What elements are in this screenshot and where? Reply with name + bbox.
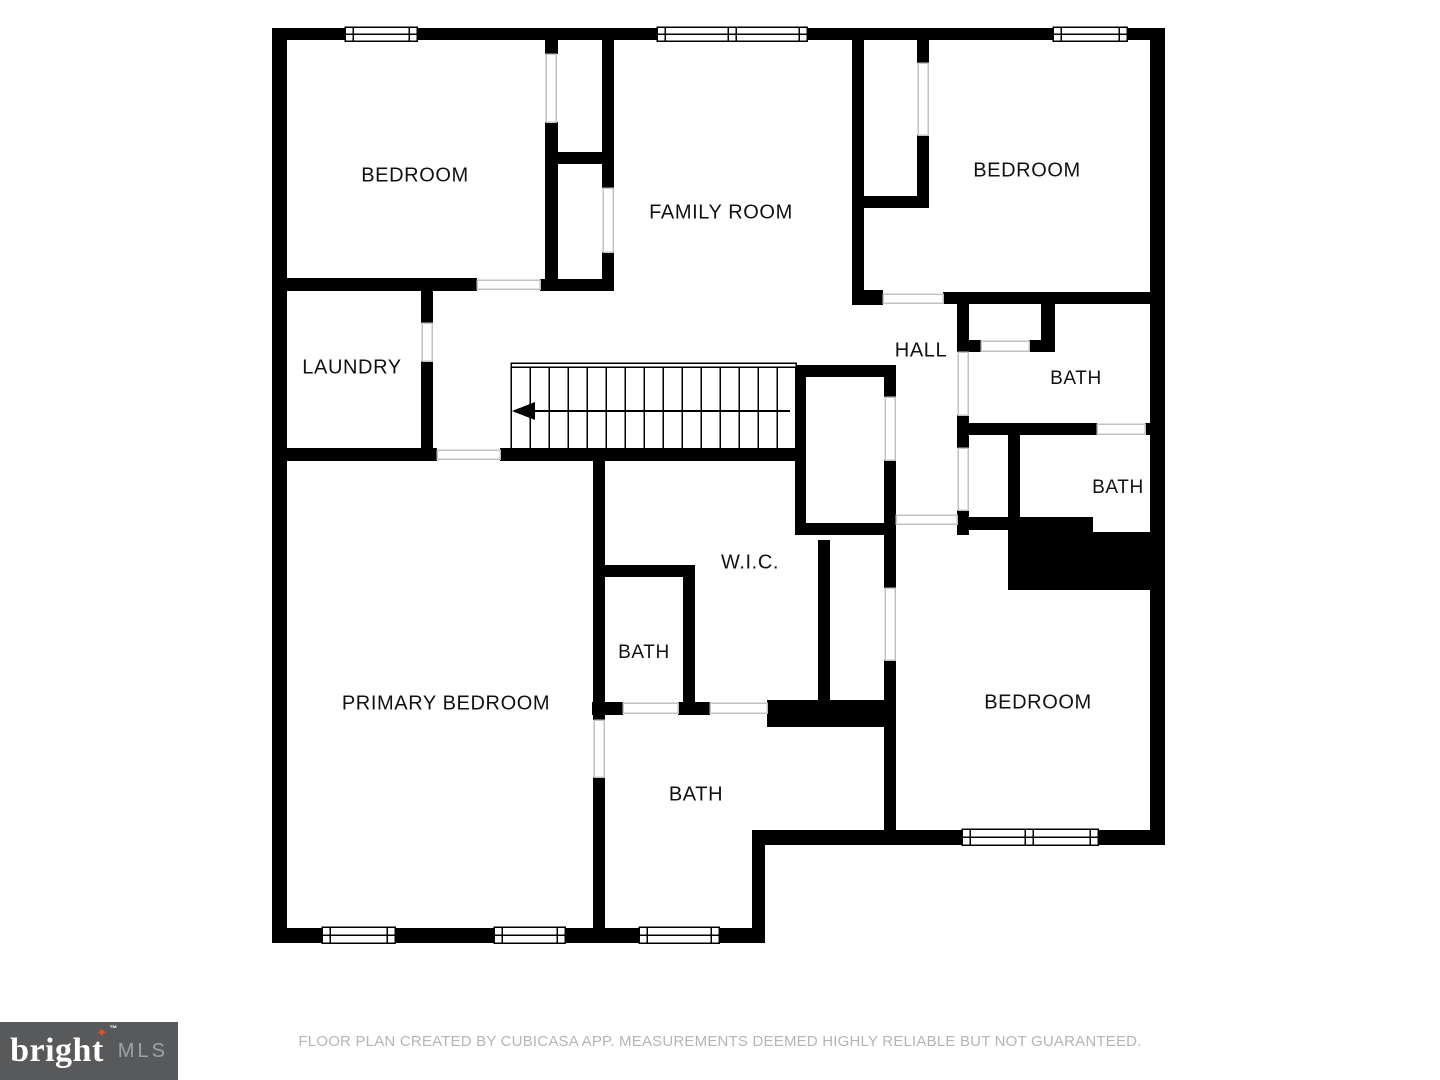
stairs — [511, 363, 796, 448]
room-label-bedroom-top-left: BEDROOM — [361, 165, 469, 188]
window-double — [657, 27, 807, 41]
room-label-family-room: FAMILY ROOM — [649, 202, 793, 225]
brand-logo-wordmark: bright ✦ ™ — [10, 1034, 104, 1068]
room-label-bedroom-bottom-right: BEDROOM — [984, 692, 1092, 715]
window — [494, 927, 565, 943]
room-label-laundry: LAUNDRY — [302, 357, 401, 380]
window — [345, 27, 417, 41]
room-label-wic: W.I.C. — [721, 552, 779, 575]
window — [1053, 27, 1127, 41]
room-label-bath-upper-right: BATH — [1050, 368, 1102, 390]
floor-plan-page: BEDROOM FAMILY ROOM BEDROOM HALL BATH BA… — [0, 0, 1440, 1080]
room-label-bath-primary: BATH — [669, 784, 723, 807]
room-label-bath-wic: BATH — [618, 642, 670, 664]
window-double — [962, 829, 1098, 845]
stair-direction-arrow — [512, 402, 790, 420]
room-label-hall: HALL — [895, 340, 947, 363]
sparkle-icon: ✦ — [96, 1027, 107, 1040]
window — [322, 927, 395, 943]
window — [639, 927, 719, 943]
footer-disclaimer: FLOOR PLAN CREATED BY CUBICASA APP. MEAS… — [0, 1033, 1440, 1050]
brand-logo-text: bright — [10, 1032, 104, 1069]
brand-logo: bright ✦ ™ MLS — [0, 1022, 178, 1080]
room-label-bath-right: BATH — [1092, 477, 1144, 499]
room-label-primary-bedroom: PRIMARY BEDROOM — [342, 693, 550, 716]
trademark-symbol: ™ — [109, 1025, 118, 1033]
brand-logo-suffix: MLS — [118, 1040, 168, 1063]
floor-plan-drawing — [0, 0, 1440, 1080]
room-label-bedroom-top-right: BEDROOM — [973, 160, 1081, 183]
